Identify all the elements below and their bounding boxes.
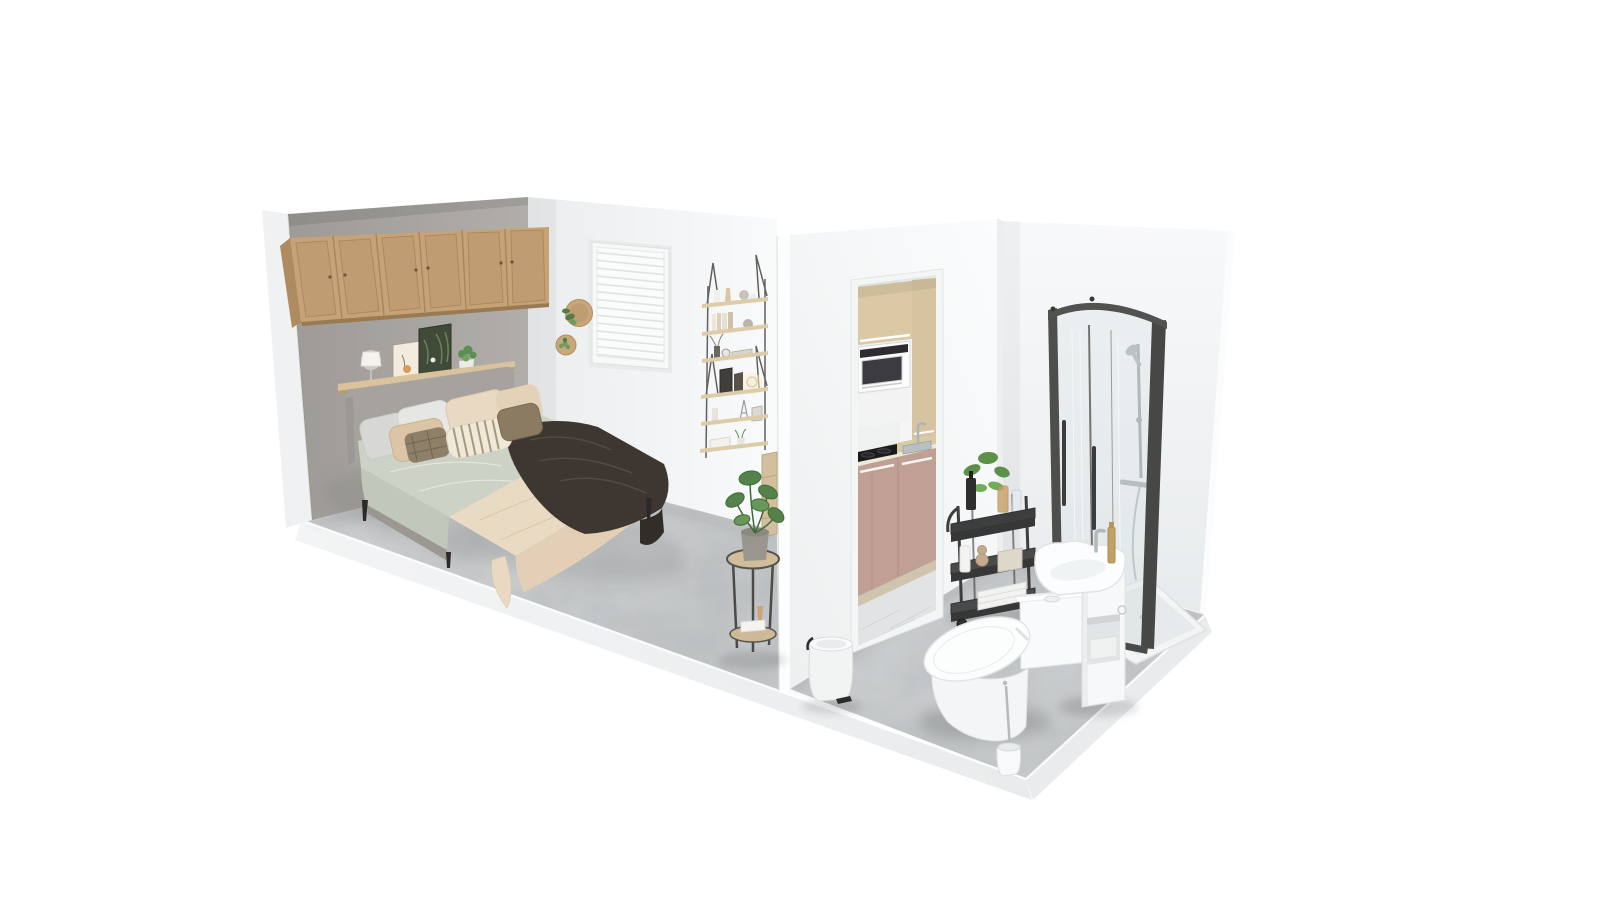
- shower-door-handle: [1062, 420, 1066, 506]
- box: [998, 548, 1022, 572]
- book-spine: [728, 312, 733, 329]
- botanical-print-large: [419, 324, 451, 376]
- brush-handle-top: [1003, 681, 1007, 685]
- dark-bottle: [966, 478, 976, 510]
- kitchen-tall-cabinet: [912, 278, 936, 441]
- book-spine: [712, 314, 716, 331]
- vase: [712, 408, 718, 421]
- print-orange-art: [403, 365, 411, 373]
- folded-towel: [1090, 636, 1117, 660]
- microwave-door: [862, 356, 902, 385]
- amber-jar: [757, 606, 763, 620]
- ornament: [739, 290, 749, 300]
- frame-cap: [1090, 297, 1095, 302]
- bottle: [725, 288, 731, 302]
- burner: [862, 453, 875, 457]
- window-blinds: [597, 247, 664, 362]
- shelf-lamp: [747, 377, 757, 387]
- shower-door-handle: [1092, 446, 1096, 530]
- kitchenette: [850, 268, 946, 652]
- vase: [714, 290, 720, 303]
- table-shadow: [718, 651, 786, 669]
- brass-bottle: [1108, 527, 1115, 563]
- bin-body: [809, 643, 853, 701]
- teddy-body: [976, 554, 988, 566]
- photo-frame: [720, 368, 732, 394]
- clear-jar: [1012, 490, 1021, 514]
- book-spine: [717, 313, 721, 330]
- under-cabinet: [858, 389, 910, 427]
- amber-jar: [998, 486, 1008, 512]
- bottle-cap: [1109, 522, 1114, 528]
- table-lamp-shade: [361, 352, 381, 366]
- window: [588, 239, 672, 373]
- book-spine: [722, 313, 727, 330]
- print-figure-art: [431, 358, 436, 363]
- bin-lid-inner: [816, 640, 846, 649]
- render-canvas[interactable]: [0, 0, 1600, 900]
- books-on-table: [741, 620, 765, 632]
- dark-vase: [714, 346, 720, 358]
- render-viewport[interactable]: [0, 0, 1600, 900]
- pump-bottle: [960, 546, 970, 572]
- teddy-head: [978, 546, 987, 555]
- bottle-pump: [969, 471, 973, 479]
- burner: [878, 449, 891, 453]
- frame-cap: [1051, 307, 1056, 312]
- flush-button: [1045, 596, 1060, 602]
- holder-rim: [998, 743, 1020, 751]
